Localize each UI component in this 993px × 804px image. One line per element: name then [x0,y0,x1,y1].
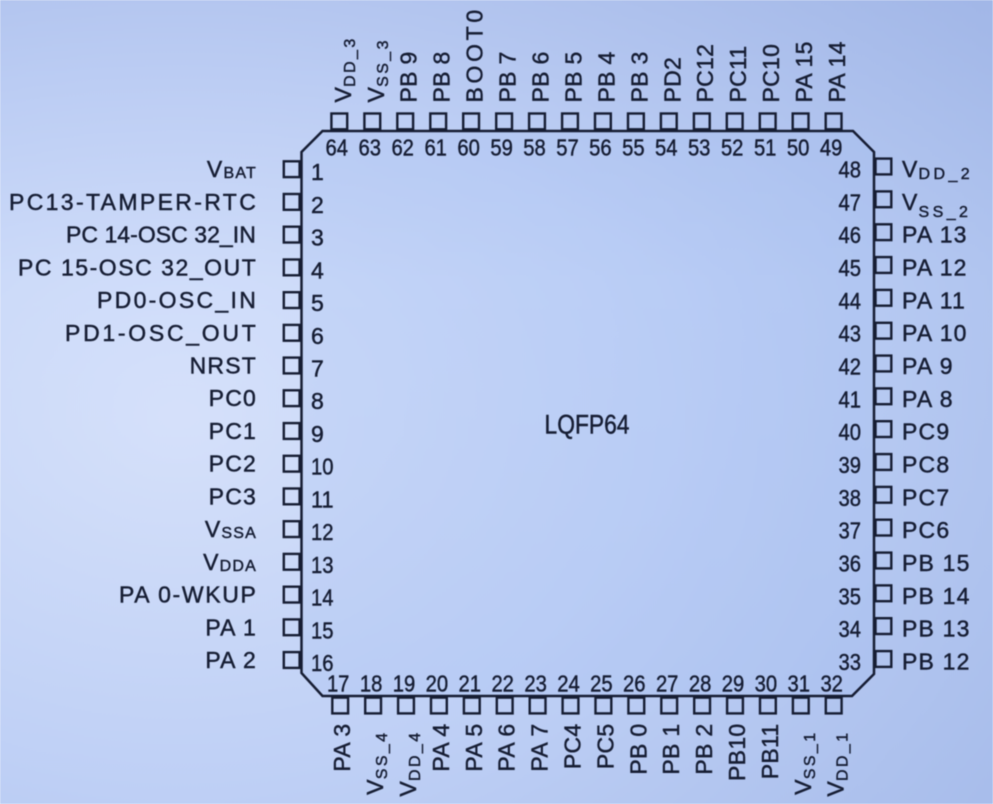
svg-text:50: 50 [787,135,810,161]
svg-text:PB 0: PB 0 [625,724,651,775]
svg-text:PD2: PD2 [659,57,685,103]
svg-text:41: 41 [839,386,862,412]
svg-text:PC3: PC3 [209,483,257,509]
svg-text:60: 60 [457,135,480,161]
svg-text:13: 13 [311,552,334,578]
svg-text:PA 3: PA 3 [329,724,355,772]
svg-text:PA 0-WKUP: PA 0-WKUP [119,582,257,608]
svg-text:52: 52 [721,135,744,161]
svg-text:LQFP64: LQFP64 [545,410,630,440]
svg-text:43: 43 [839,321,862,347]
svg-text:PC 14-OSC 32_IN: PC 14-OSC 32_IN [66,222,257,248]
svg-text:PA 1: PA 1 [205,614,257,640]
svg-text:PB 5: PB 5 [561,51,587,102]
svg-text:PC10: PC10 [758,44,784,103]
svg-text:59: 59 [490,135,513,161]
svg-text:10: 10 [311,454,334,480]
svg-text:20: 20 [426,671,449,697]
svg-text:53: 53 [688,135,711,161]
svg-text:PB 9: PB 9 [396,51,422,102]
svg-text:38: 38 [839,485,862,511]
svg-text:29: 29 [722,671,745,697]
svg-text:PB 13: PB 13 [902,616,971,642]
svg-text:4: 4 [311,257,324,283]
svg-text:64: 64 [326,135,349,161]
svg-text:62: 62 [391,135,414,161]
svg-text:40: 40 [839,419,862,445]
svg-text:PB10: PB10 [724,724,750,781]
svg-text:7: 7 [311,356,324,382]
svg-text:PA 7: PA 7 [527,724,553,772]
svg-text:36: 36 [839,551,862,577]
svg-text:PA 13: PA 13 [902,222,968,248]
svg-text:PA 4: PA 4 [428,724,454,772]
svg-text:39: 39 [839,452,862,478]
svg-text:PC11: PC11 [725,45,751,102]
svg-text:21: 21 [459,671,482,697]
svg-text:61: 61 [424,135,447,161]
svg-text:PC9: PC9 [902,419,950,445]
svg-text:PA 14: PA 14 [824,41,850,102]
svg-text:PC7: PC7 [902,484,950,510]
svg-text:16: 16 [311,650,334,676]
svg-text:PB 3: PB 3 [626,51,652,102]
svg-text:44: 44 [839,288,862,314]
svg-text:PA 6: PA 6 [494,724,520,772]
svg-text:PD1-OSC_OUT: PD1-OSC_OUT [65,320,257,346]
svg-text:PA 9: PA 9 [902,353,954,379]
svg-text:PB 8: PB 8 [429,51,455,102]
svg-text:PA 15: PA 15 [791,41,817,102]
svg-text:33: 33 [839,649,862,675]
svg-text:56: 56 [589,135,612,161]
svg-text:34: 34 [839,616,862,642]
svg-text:PC5: PC5 [592,724,618,770]
svg-text:19: 19 [393,671,416,697]
svg-text:22: 22 [491,671,514,697]
svg-text:PA 2: PA 2 [205,647,257,673]
svg-text:PC1: PC1 [209,418,257,444]
svg-text:PA 5: PA 5 [461,724,487,772]
svg-text:6: 6 [311,323,324,349]
svg-text:PB 7: PB 7 [495,51,521,102]
svg-text:PA 8: PA 8 [902,386,954,412]
svg-text:25: 25 [590,671,613,697]
svg-text:45: 45 [839,255,862,281]
svg-text:BOOT0: BOOT0 [462,10,488,103]
svg-text:NRST: NRST [190,353,257,379]
svg-text:15: 15 [311,617,334,643]
svg-text:12: 12 [311,519,334,545]
svg-text:28: 28 [689,671,712,697]
svg-text:42: 42 [839,354,862,380]
svg-text:PC13-TAMPER-RTC: PC13-TAMPER-RTC [9,189,257,215]
svg-text:PB 4: PB 4 [593,51,619,102]
svg-text:PB11: PB11 [757,724,783,780]
svg-text:48: 48 [839,157,862,183]
svg-text:55: 55 [622,135,645,161]
svg-text:2: 2 [311,192,324,218]
svg-text:PC 15-OSC 32_OUT: PC 15-OSC 32_OUT [18,254,257,280]
svg-text:35: 35 [839,583,862,609]
svg-text:8: 8 [311,388,324,414]
svg-text:PC8: PC8 [902,452,950,478]
svg-text:51: 51 [754,135,777,161]
svg-text:PA 12: PA 12 [902,255,968,281]
svg-text:1: 1 [311,159,324,185]
svg-text:PA 11: PA 11 [902,287,966,313]
svg-text:57: 57 [556,135,579,161]
svg-text:63: 63 [359,135,382,161]
svg-text:54: 54 [655,135,678,161]
svg-text:PA 10: PA 10 [902,320,968,346]
svg-text:PC6: PC6 [902,517,950,543]
svg-text:PB 14: PB 14 [902,583,971,609]
svg-text:PB 15: PB 15 [902,550,971,576]
svg-text:27: 27 [656,671,679,697]
svg-text:47: 47 [839,189,862,215]
svg-text:9: 9 [311,421,324,447]
svg-text:PB 6: PB 6 [528,51,554,102]
svg-text:11: 11 [311,486,334,512]
svg-text:PC4: PC4 [560,724,586,770]
svg-text:58: 58 [523,135,546,161]
svg-text:37: 37 [839,518,862,544]
svg-text:24: 24 [557,671,580,697]
svg-text:PB 2: PB 2 [691,724,717,775]
svg-text:PC0: PC0 [209,385,257,411]
svg-text:26: 26 [623,671,646,697]
svg-text:18: 18 [360,671,383,697]
svg-text:30: 30 [755,671,778,697]
svg-text:31: 31 [788,671,811,697]
svg-text:PB 1: PB 1 [658,724,684,775]
svg-text:5: 5 [311,290,324,316]
svg-text:PD0-OSC_IN: PD0-OSC_IN [97,287,257,313]
svg-text:46: 46 [839,222,862,248]
svg-text:23: 23 [524,671,547,697]
svg-text:PC2: PC2 [209,451,257,477]
svg-text:3: 3 [311,225,324,251]
svg-text:PC12: PC12 [692,44,718,103]
svg-text:14: 14 [311,585,334,611]
svg-text:PB 12: PB 12 [902,649,971,675]
